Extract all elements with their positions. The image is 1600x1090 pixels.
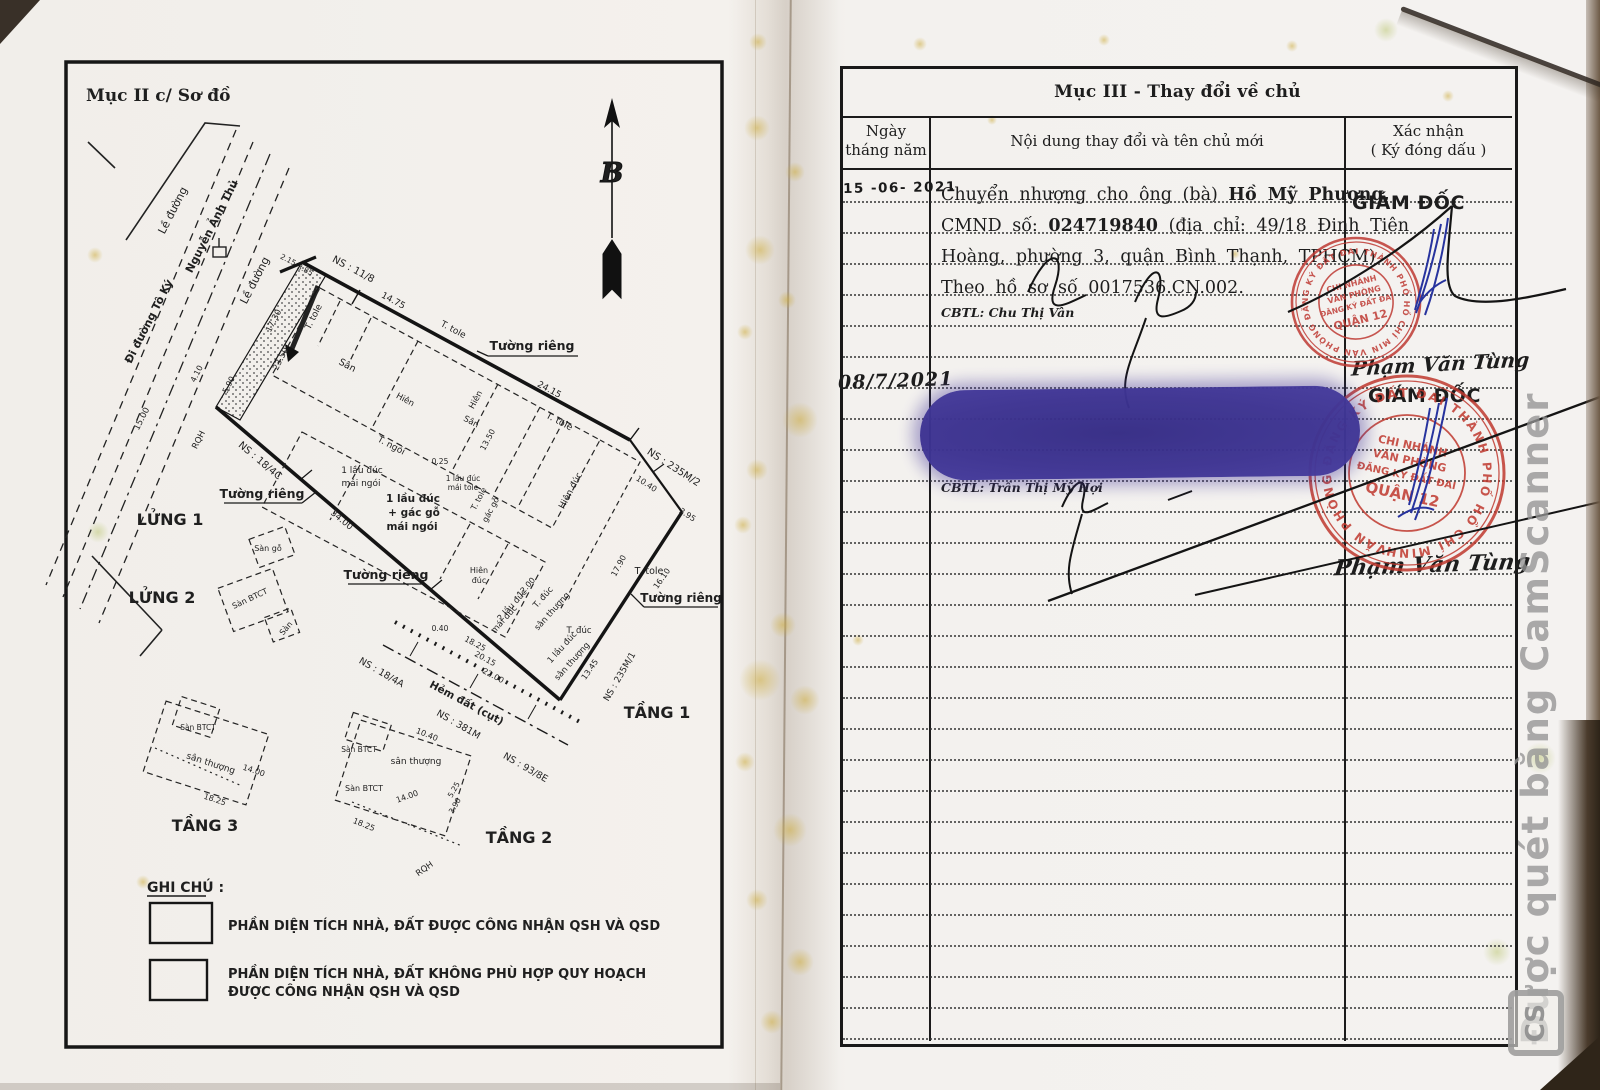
camscanner-logo-text: CS	[1521, 1004, 1551, 1042]
plan-label: 15.00	[132, 406, 152, 432]
legend-item-1: PHẦN DIỆN TÍCH NHÀ, ĐẤT ĐƯỢC CÔNG NHẬN Q…	[228, 916, 660, 934]
dotted-rule	[843, 821, 1512, 823]
stain-spot	[782, 402, 818, 438]
row1-line2-text: (địa chỉ: 49/18 Đinh Tiên	[1169, 216, 1409, 236]
legend-item-2b: ĐƯỢC CÔNG NHẬN QSH VÀ QSD	[228, 984, 460, 1000]
stain-spot	[746, 889, 768, 911]
stain-spot	[735, 752, 755, 772]
plan-label: 14.00	[241, 763, 266, 779]
plan-label: 24.15	[535, 380, 562, 401]
plan-label: 4.10	[189, 364, 205, 384]
plan-label: Sàn BTCT	[341, 745, 377, 754]
plan-label: 0.25	[432, 457, 449, 466]
stain-spot	[770, 612, 796, 638]
plan-label: 22.00	[481, 666, 505, 685]
plan-label: Lề đường	[238, 255, 273, 306]
dotted-rule	[843, 852, 1512, 854]
plan-label: sân thượng	[533, 591, 572, 633]
table-col1-divider	[929, 118, 931, 1041]
plan-label: Tường riêng	[490, 338, 575, 353]
dotted-rule	[843, 976, 1512, 978]
plan-label: RQH	[190, 429, 208, 450]
stain-spot	[745, 235, 775, 265]
plan-label: đúc	[472, 576, 487, 585]
stain-spot	[773, 813, 807, 847]
dotted-rule	[843, 542, 1512, 544]
plan-label: 3.90	[447, 796, 463, 815]
plan-label: mái ngói	[386, 521, 437, 533]
plan-label: sân thượng	[391, 757, 442, 767]
plan-label: T. tole	[543, 410, 575, 434]
plan-label: Sàn gỗ	[254, 543, 282, 553]
plan-label: sân thượng	[185, 752, 236, 777]
plan-floor-label: TẦNG 2	[486, 826, 553, 847]
stain-spot	[1374, 18, 1398, 42]
plan-label: 18.25	[352, 816, 377, 833]
redaction-bar	[919, 385, 1360, 480]
col-header-confirm-line1: Xác nhận	[1393, 122, 1464, 140]
scan-edge-bottom	[0, 1083, 780, 1090]
dotted-rule	[843, 1007, 1512, 1009]
plan-label: 13.45	[580, 658, 601, 682]
plan-label: T. tole	[469, 486, 489, 513]
plan-label: 1 lầu đúc	[446, 474, 481, 483]
plan-label: 12.00	[515, 576, 537, 599]
plan-labels: Lề đường Nguyễn Ảnh Thủ Đi đường Tô Ký L…	[122, 177, 722, 879]
plan-label: 34.00	[328, 508, 354, 532]
plan-label: mái ngói	[341, 478, 380, 489]
row1-id-number: 024719840	[1048, 216, 1158, 236]
plan-label: gác gỗ	[480, 495, 502, 524]
plan-label: NS : 18/4C	[236, 440, 284, 483]
plan-label: mái đúc	[489, 603, 519, 635]
plan-label: T. đúc	[531, 585, 556, 611]
row1-line1-text: Chuyển nhượng cho ông (bà)	[941, 185, 1218, 205]
scan-corner-top-left	[0, 0, 40, 44]
plan-label: 23.50	[271, 346, 291, 372]
plan-label: mái tole	[448, 483, 479, 492]
plan-label: 20.15	[473, 649, 497, 668]
col-header-content: Nội dung thay đổi và tên chủ mới	[932, 132, 1342, 151]
row2-date-handwritten: 08/7/2021	[838, 368, 954, 394]
stain-spot	[1286, 40, 1298, 52]
plan-floor-label: LỬNG 2	[129, 586, 196, 607]
dotted-rule	[843, 511, 1512, 513]
stain-spot	[1098, 34, 1110, 46]
table-title-divider	[843, 116, 1512, 118]
plan-label: NS : 235M/1	[602, 651, 638, 704]
compass-letter: B	[600, 158, 624, 189]
plan-label: sân thượng	[553, 641, 592, 683]
stain-spot	[790, 685, 820, 715]
plan-label: Sàn BTCT	[180, 723, 216, 732]
plan-label: NS : 93/8E	[501, 751, 550, 785]
plan-label: 13.50	[478, 428, 497, 452]
building-outlines	[143, 288, 640, 846]
plan-frame: Mục II c/ Sơ đồ	[66, 62, 722, 1047]
plan-label: 3.95	[677, 506, 697, 523]
stain-spot	[749, 33, 767, 51]
dotted-rule	[843, 635, 1512, 637]
table-title: Mục III - Thay đổi về chủ	[843, 82, 1512, 102]
plan-label: T. tole	[438, 319, 468, 341]
stain-spot	[87, 521, 109, 543]
plan-floor-label: LỬNG 1	[137, 508, 204, 529]
row1-line4: Theo hồ sơ số 0017536.CN.002.	[941, 278, 1244, 298]
plan-label: 1 lầu đúc	[545, 629, 580, 666]
plan-label: NS : 11/8	[330, 254, 376, 285]
row1-date-stamp: 15 -06- 2021	[843, 179, 957, 197]
camscanner-logo: CS	[1508, 990, 1564, 1056]
label-leaders	[147, 351, 718, 896]
plan-label: 1 lầu đúc	[341, 465, 383, 476]
plan-label: Lề đường	[156, 185, 191, 236]
plan-label: 1 lầu đúc	[386, 493, 440, 505]
plan-label: 5.25	[446, 780, 462, 799]
plan-label: 14.75	[379, 291, 406, 312]
plan-label: NS : 18/4A	[357, 656, 406, 691]
plan-label: Hiên	[470, 565, 488, 575]
plan-label: 3.85	[296, 262, 315, 278]
plan-label: T. đúc	[565, 626, 591, 636]
plan-label: + gác gỗ	[388, 506, 440, 519]
stain-spot	[913, 37, 927, 51]
stain-spot	[744, 115, 770, 141]
plan-label: Tường riêng	[344, 567, 429, 582]
plan-label: Hiên đúc	[557, 471, 585, 511]
plan-label: Sàn	[278, 620, 295, 637]
row1-cbtl: CBTL: Chu Thị Vân	[941, 305, 1074, 320]
plan-title: Mục II c/ Sơ đồ	[86, 86, 231, 106]
plan-label: Tường riêng	[640, 591, 722, 605]
dotted-rule	[843, 945, 1512, 947]
dotted-rule	[843, 697, 1512, 699]
scanned-document: Mục III - Thay đổi về chủ Ngày tháng năm…	[0, 0, 1600, 1090]
scan-edge-right	[1586, 0, 1600, 740]
plan-floor-label: TẦNG 3	[172, 814, 239, 835]
plan-label: 10.40	[415, 726, 440, 743]
north-compass-icon: B	[600, 98, 624, 298]
plan-label: Đi đường Tô Ký	[122, 277, 176, 365]
stain-spot	[737, 324, 753, 340]
plan-label: Sân	[462, 414, 481, 430]
col-header-date: Ngày tháng năm	[845, 122, 927, 160]
dotted-rule	[843, 790, 1512, 792]
plan-label: 5.90	[221, 375, 237, 395]
plan-label: 2.15	[279, 252, 298, 268]
dotted-rule	[843, 759, 1512, 761]
plan-label: Hẻm đất (cụt)	[427, 678, 506, 728]
fold-line-2	[755, 0, 756, 1090]
plan-label: NS : 381M	[434, 708, 482, 742]
plan-label: T. ngói	[375, 434, 407, 458]
row1-line2-label: CMND số:	[941, 216, 1038, 236]
dotted-rule	[843, 728, 1512, 730]
plan-label: 0.40	[432, 624, 449, 633]
plan-label: Sân	[337, 357, 358, 375]
table-header-divider	[843, 168, 1512, 170]
plan-label: NS : 235M/2	[645, 447, 702, 489]
plan-label: Nguyễn Ảnh Thủ	[182, 177, 241, 275]
row1-line2: CMND số: 024719840 (địa chỉ: 49/18 Đinh …	[941, 216, 1409, 236]
legend-title: GHI CHÚ :	[147, 878, 224, 896]
plan-label: RQH	[414, 860, 435, 879]
stain-spot	[778, 291, 796, 309]
legend-item-2a: PHẦN DIỆN TÍCH NHÀ, ĐẤT KHÔNG PHÙ HỢP QU…	[228, 964, 646, 982]
alley-lines	[383, 622, 580, 745]
row1-director-label: GIÁM ĐỐC	[1352, 192, 1465, 214]
stain-spot	[734, 516, 752, 534]
stain-spot	[786, 948, 814, 976]
plan-floor-label: TẦNG 1	[624, 701, 691, 722]
dotted-rule	[843, 604, 1512, 606]
stain-spot	[739, 659, 781, 701]
plan-label: 14.00	[395, 789, 420, 805]
col-header-confirm-line2: ( Ký đóng dấu )	[1371, 141, 1487, 159]
plan-label: 10.40	[634, 474, 658, 494]
stain-spot	[760, 1010, 784, 1034]
stain-spot	[136, 875, 150, 889]
plan-label: Hiên	[394, 390, 416, 409]
row2-director-label: GIÁM ĐỐC	[1368, 385, 1481, 407]
plan-label: Hiên	[466, 389, 485, 411]
dotted-rule	[843, 325, 1512, 327]
camscanner-watermark: Được quét bằng CamScanner	[1514, 420, 1570, 1045]
plan-label: 18.25	[202, 792, 227, 808]
stain-spot	[785, 162, 805, 182]
stain-spot	[746, 459, 768, 481]
plan-label: Tường riêng	[220, 486, 305, 501]
survey-brackets	[88, 123, 240, 656]
stain-spot	[87, 247, 103, 263]
plan-label: 2 lầu đúc	[495, 587, 530, 624]
row2-cbtl: CBTL: Trần Thị Mỹ Hợi	[941, 480, 1103, 495]
dotted-rule	[843, 666, 1512, 668]
plan-label: T. tole	[634, 566, 664, 577]
row1-line1: Chuyển nhượng cho ông (bà) Hồ Mỹ Phương,	[941, 185, 1390, 205]
legend: GHI CHÚ : PHẦN DIỆN TÍCH NHÀ, ĐẤT ĐƯỢC C…	[147, 878, 660, 1000]
plan-label: Sàn BTCT	[231, 587, 269, 611]
plan-label: 17.90	[609, 554, 628, 578]
plan-label: T. tole	[303, 302, 325, 332]
plan-label: 18.25	[463, 634, 487, 653]
dotted-rule	[843, 914, 1512, 916]
parcel-boundaries	[216, 257, 682, 700]
plan-label: 17.30	[264, 308, 284, 334]
col-header-confirm: Xác nhận ( Ký đóng dấu )	[1347, 122, 1510, 160]
row1-line3: Hoàng, phường 3, quận Bình Thạnh, TPHCM)	[941, 247, 1376, 267]
dotted-rule	[843, 1038, 1512, 1040]
plan-label: 16.10	[652, 567, 673, 591]
road-lines	[46, 130, 318, 623]
dotted-rule	[843, 883, 1512, 885]
plan-label: Sàn BTCT	[345, 784, 383, 793]
